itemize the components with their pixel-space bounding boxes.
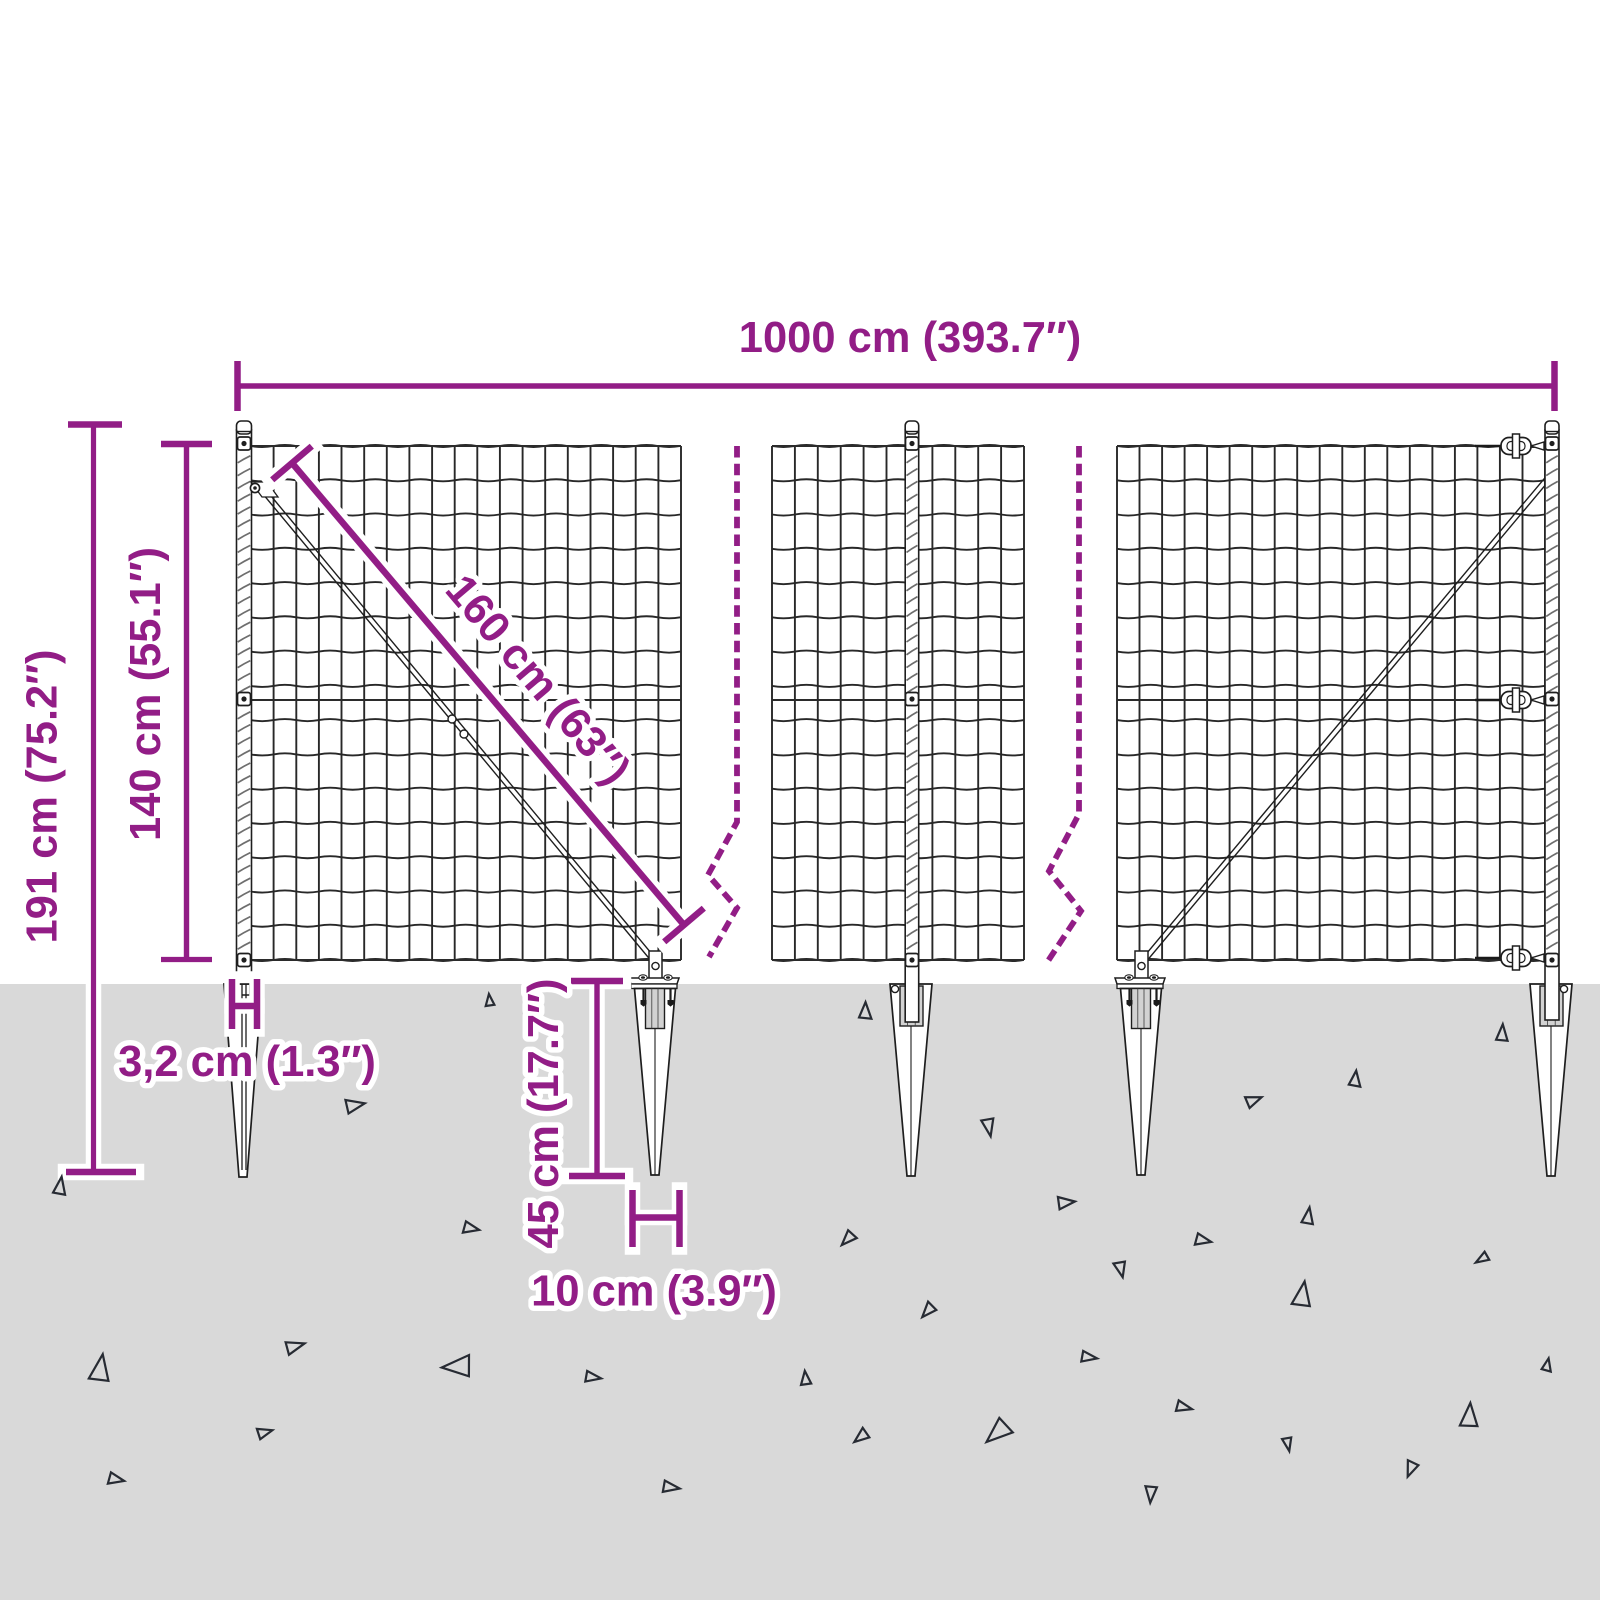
svg-text:3,2 cm (1.3″): 3,2 cm (1.3″) (118, 1038, 376, 1086)
svg-text:1000 cm (393.7″): 1000 cm (393.7″) (739, 314, 1081, 362)
svg-text:191 cm (75.2″): 191 cm (75.2″) (19, 649, 67, 943)
svg-text:45 cm (17.7″): 45 cm (17.7″) (520, 979, 568, 1249)
svg-text:140 cm (55.1″): 140 cm (55.1″) (122, 547, 170, 841)
svg-text:10 cm (3.9″): 10 cm (3.9″) (531, 1268, 777, 1316)
